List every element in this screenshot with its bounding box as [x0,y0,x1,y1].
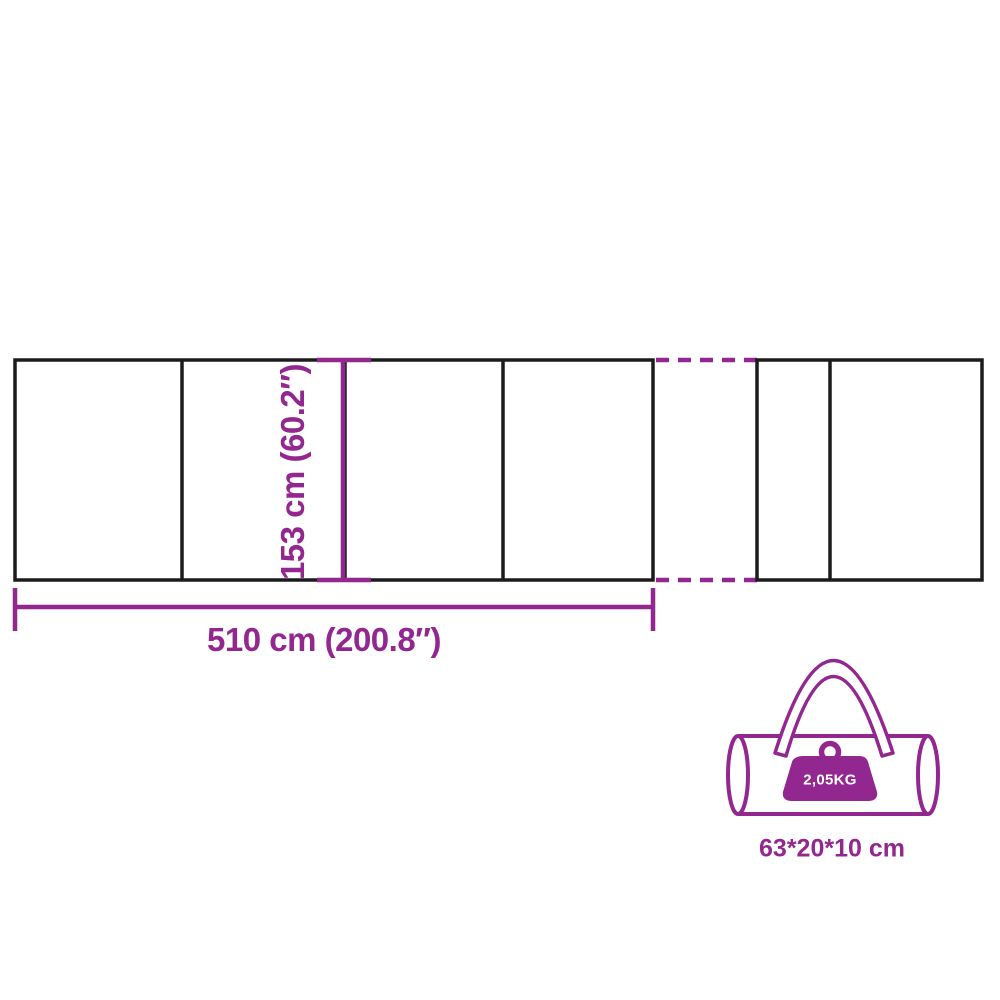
extension-dashed-section [656,360,757,580]
diagram-canvas: 153 cm (60.2″) 510 cm (200.8″) 2,05KG 63… [0,0,1000,1000]
width-dimension-label: 510 cm (200.8″) [207,621,441,659]
height-dimension-label: 153 cm (60.2″) [274,364,312,580]
carry-bag-icon [728,661,938,815]
screen-right-outline [757,360,982,580]
bag-dimensions-label: 63*20*10 cm [759,835,905,864]
screen-right-section [757,360,982,580]
height-dimension [317,360,371,580]
bag-weight-label: 2,05KG [803,772,857,789]
bag-right-end [918,736,938,814]
screen-main-section [15,360,653,580]
bag-left-end [728,736,748,814]
screen-outline [15,360,653,580]
